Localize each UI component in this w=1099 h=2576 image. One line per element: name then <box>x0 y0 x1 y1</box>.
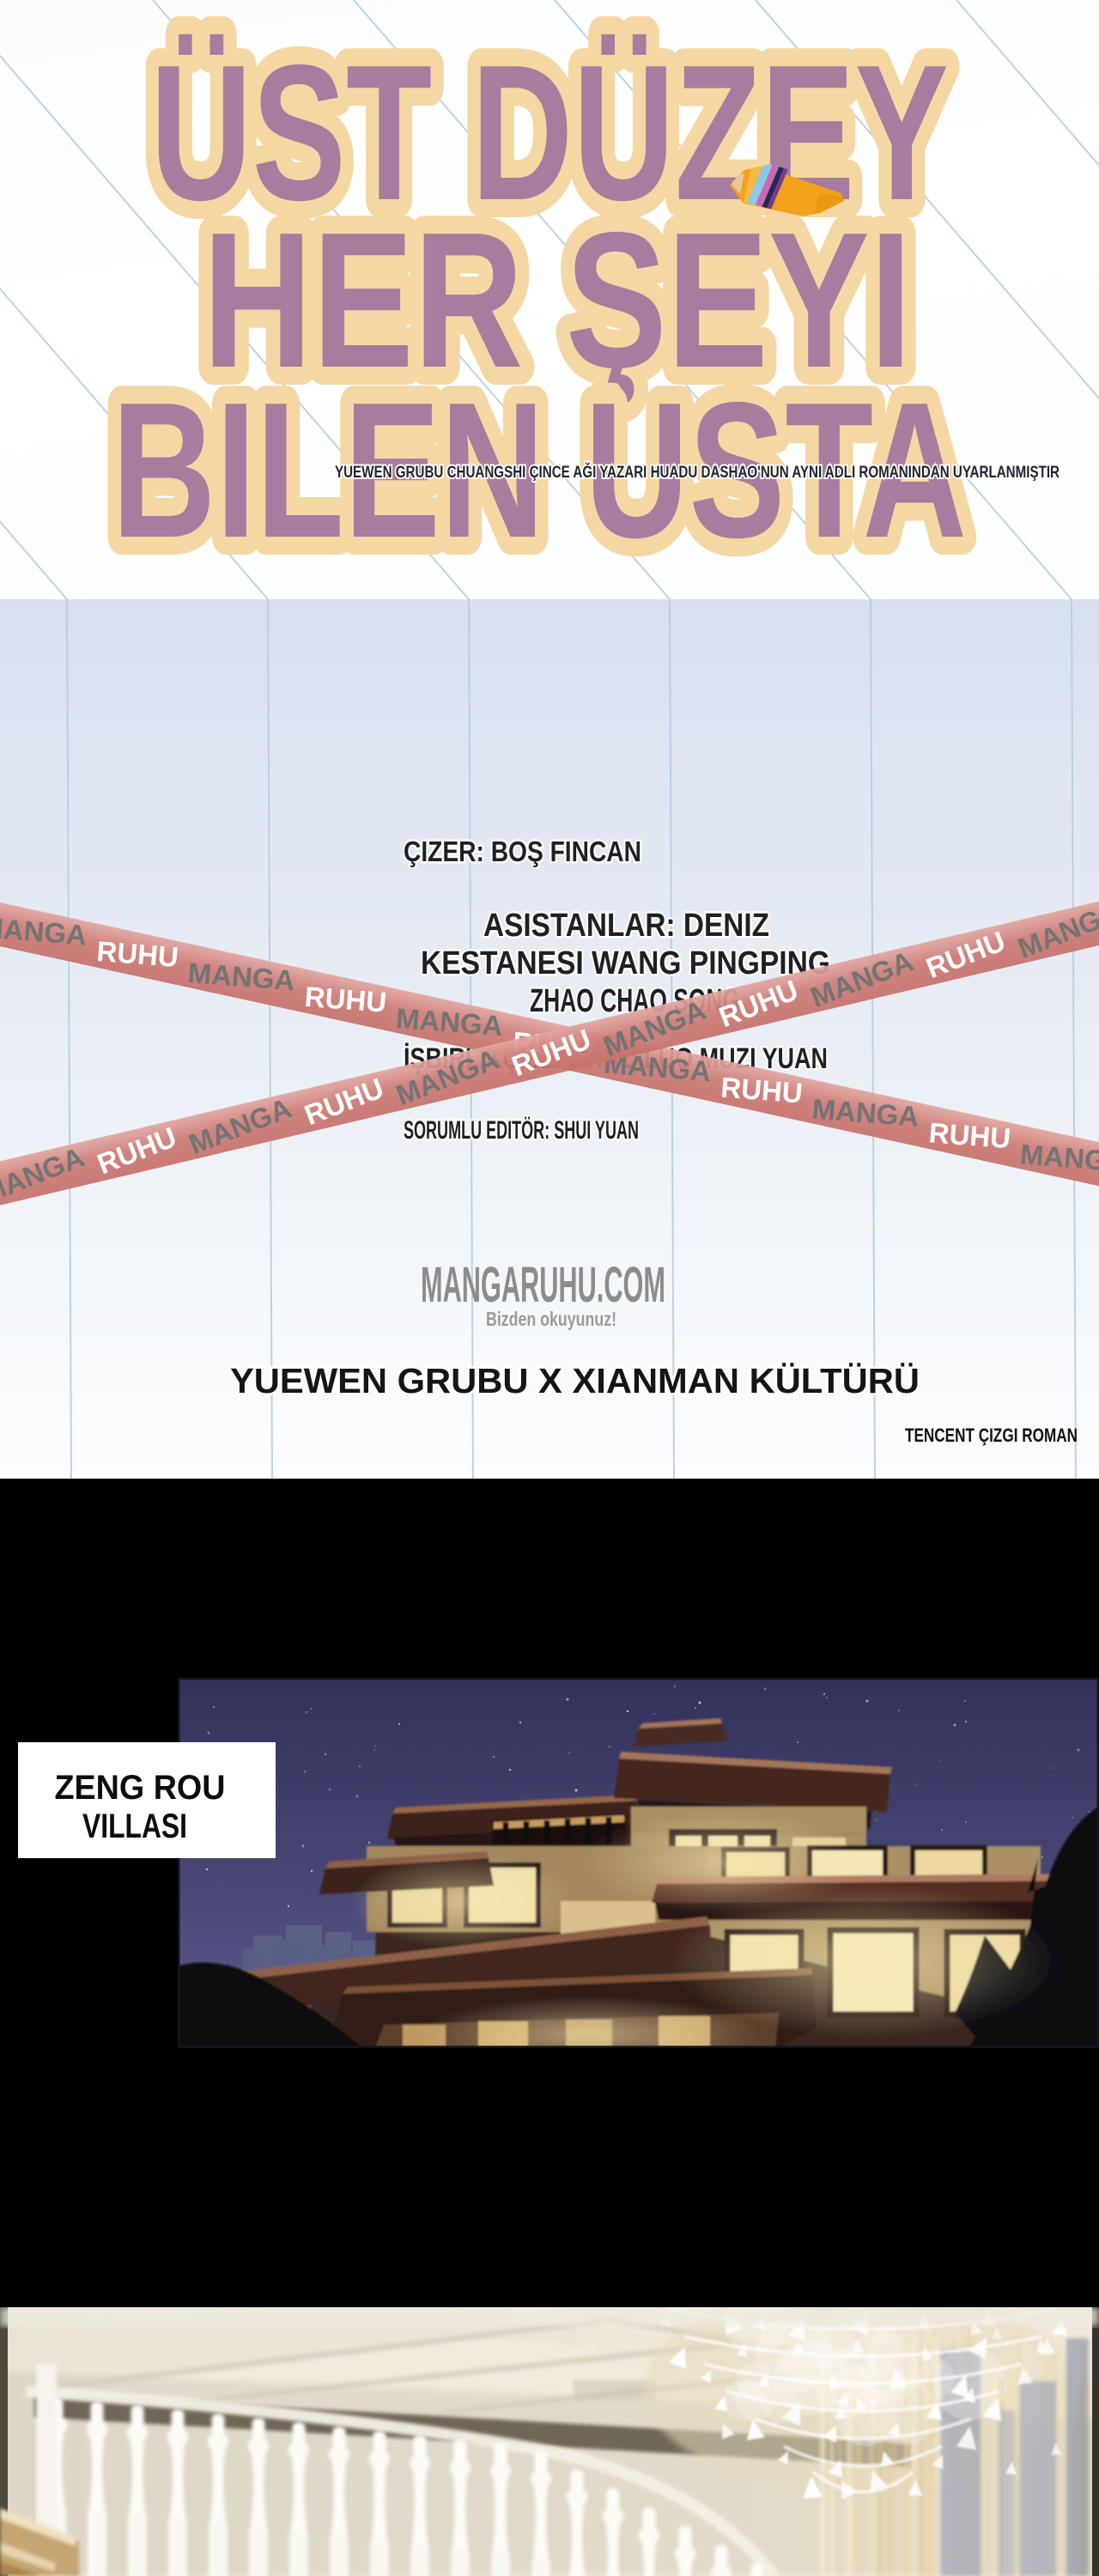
svg-text:KESTANESI WANG PINGPING: KESTANESI WANG PINGPING <box>421 945 830 981</box>
svg-text:YUEWEN GRUBU X XIANMAN KÜLTÜRÜ: YUEWEN GRUBU X XIANMAN KÜLTÜRÜ <box>230 1361 920 1400</box>
svg-text:SORUMLU EDITÖR: SHUI YUAN: SORUMLU EDITÖR: SHUI YUAN <box>404 1116 639 1145</box>
svg-text:Bizden okuyunuz!: Bizden okuyunuz! <box>486 1308 616 1330</box>
svg-text:ZENG ROU: ZENG ROU <box>55 1769 226 1807</box>
svg-text:YUEWEN GRUBU CHUANGSHI ÇINCE A: YUEWEN GRUBU CHUANGSHI ÇINCE AĞI YAZARI … <box>335 463 1060 482</box>
svg-text:ASISTANLAR: DENIZ: ASISTANLAR: DENIZ <box>483 908 769 944</box>
svg-text:TENCENT ÇIZGI ROMAN: TENCENT ÇIZGI ROMAN <box>905 1425 1078 1446</box>
svg-text:VILLASI: VILLASI <box>82 1807 187 1845</box>
svg-text:ÇIZER: BOŞ FINCAN: ÇIZER: BOŞ FINCAN <box>404 835 641 867</box>
svg-text:MANGARUHU.COM: MANGARUHU.COM <box>421 1257 665 1313</box>
